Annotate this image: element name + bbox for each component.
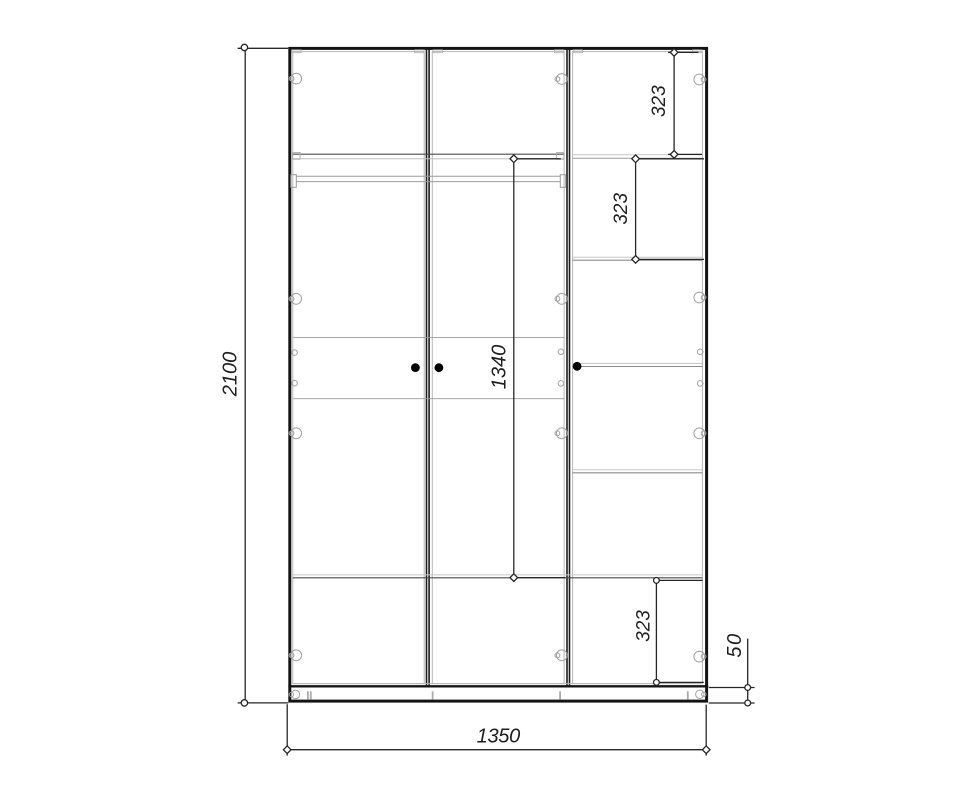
svg-text:50: 50: [724, 632, 746, 657]
svg-text:1350: 1350: [477, 726, 520, 748]
svg-text:323: 323: [634, 610, 655, 642]
svg-text:323: 323: [649, 85, 670, 117]
svg-text:2100: 2100: [220, 352, 242, 398]
svg-text:323: 323: [611, 193, 632, 225]
svg-text:1340: 1340: [489, 345, 511, 390]
